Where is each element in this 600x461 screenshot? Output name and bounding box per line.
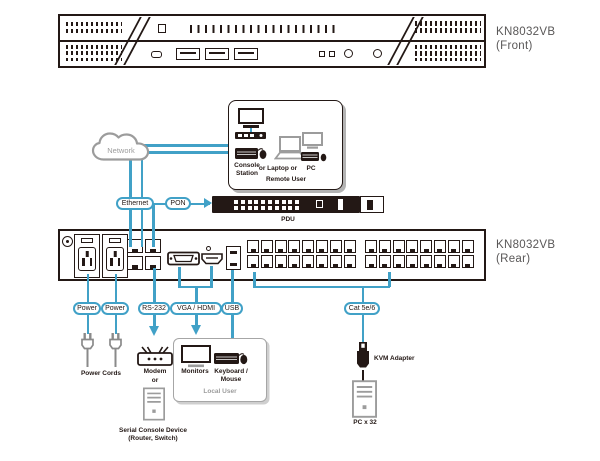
rj45-port xyxy=(365,240,377,253)
power-inlet-1 xyxy=(74,234,100,278)
rear-panel-label: KN8032VB (Rear) xyxy=(496,238,555,266)
pdu-outlet xyxy=(241,206,245,210)
installation-diagram: KN8032VB (Front) KN8032VB (Rear) PDU xyxy=(0,0,600,461)
kvm-adapter-label: KVM Adapter xyxy=(374,355,434,363)
rs232-arrow xyxy=(149,326,159,336)
server-tower-icon xyxy=(352,380,377,418)
monitors-label: Monitors xyxy=(176,368,214,376)
pdu-outlet xyxy=(288,206,292,210)
keyboard-mouse-icon xyxy=(235,145,267,161)
front-knob xyxy=(344,49,353,58)
rj45-port xyxy=(275,240,287,253)
pdu-end-cap xyxy=(360,196,384,213)
front-port-band xyxy=(66,51,122,55)
audio-port xyxy=(206,246,211,251)
rj45-port xyxy=(261,255,273,268)
console-monitor-icon xyxy=(238,108,264,129)
pdu-outlet xyxy=(288,200,292,204)
front-port-band xyxy=(66,22,122,26)
rj45-port xyxy=(393,255,405,268)
monitor-icon xyxy=(181,345,211,368)
rj45-port xyxy=(330,255,342,268)
pdu-outlet xyxy=(234,200,238,204)
kvm-port-group-2 xyxy=(365,240,475,268)
front-led-row xyxy=(190,25,340,33)
pdu-outlet xyxy=(254,206,258,210)
pdu-outlet xyxy=(261,200,265,204)
front-port-band xyxy=(415,51,481,56)
rj45-port xyxy=(406,255,418,268)
front-panel-label: KN8032VB (Front) xyxy=(496,25,555,53)
rj45-port xyxy=(448,240,460,253)
pdu-outlet xyxy=(268,206,272,210)
rj45-port xyxy=(288,255,300,268)
usb-pill: USB xyxy=(221,302,243,315)
ethernet-pill: Ethernet xyxy=(116,197,154,210)
rj45-port xyxy=(434,255,446,268)
front-usb-port xyxy=(176,48,200,60)
cable-rs232 xyxy=(153,268,156,327)
pdu-outlet xyxy=(261,206,265,210)
front-usb-port xyxy=(234,48,258,60)
pc-label: PC xyxy=(300,165,322,173)
pdu-outlet xyxy=(248,206,252,210)
rj45-port xyxy=(462,240,474,253)
pdu-outlet xyxy=(268,200,272,204)
rj45-port xyxy=(393,240,405,253)
pc-monitor-icon xyxy=(302,132,323,149)
pdu-outlet xyxy=(295,200,299,204)
serial-console-label: Serial Console Device (Router, Switch) xyxy=(106,427,200,443)
vga-hdmi-arrow xyxy=(191,325,201,335)
rj45-port xyxy=(261,240,273,253)
rj45-port xyxy=(344,255,356,268)
power-pill-2: Power xyxy=(101,302,129,315)
pdu-slot xyxy=(338,199,343,210)
pdu-outlets xyxy=(234,200,302,211)
cat5e6-pill: Cat 5e/6 xyxy=(344,302,380,315)
rear-model-text: KN8032VB xyxy=(496,238,555,252)
front-connector xyxy=(158,24,166,33)
rj45-port xyxy=(448,255,460,268)
front-port-band xyxy=(66,45,122,49)
cable-cat-bus xyxy=(253,286,390,289)
pc-count-label: PC x 32 xyxy=(343,419,387,427)
serial-console-line2: (Router, Switch) xyxy=(106,435,200,443)
modem-icon xyxy=(137,345,173,367)
iec-socket-icon xyxy=(106,247,124,271)
pon-pill: PON xyxy=(165,197,191,210)
ground-terminal xyxy=(62,236,73,247)
pdu-label: PDU xyxy=(274,216,302,224)
network-cloud-icon: Network xyxy=(90,130,154,168)
front-button xyxy=(319,51,325,57)
front-view-text: (Front) xyxy=(496,39,555,53)
rj45-port xyxy=(420,255,432,268)
power-pill-1: Power xyxy=(73,302,101,315)
pdu-outlet xyxy=(254,200,258,204)
rj45-port xyxy=(275,255,287,268)
vga-port-icon xyxy=(167,251,200,266)
power-inlet-2 xyxy=(102,234,128,278)
fuse-slot xyxy=(109,238,121,243)
rj45-port xyxy=(302,255,314,268)
front-port-band xyxy=(415,45,481,49)
front-button xyxy=(329,51,335,57)
pdu-outlet xyxy=(282,206,286,210)
front-port-band xyxy=(415,21,481,26)
pdu-end-slot xyxy=(367,200,373,210)
rs232-pill: RS-232 xyxy=(138,302,170,315)
front-usb-port xyxy=(205,48,229,60)
keyboard-mouse-label: Keyboard / Mouse xyxy=(211,368,251,384)
rj45-port xyxy=(420,240,432,253)
or-label: or xyxy=(147,377,163,385)
front-port-band xyxy=(415,58,481,61)
kvm-adapter-icon xyxy=(355,342,371,371)
front-knob xyxy=(373,49,382,58)
serial-console-line1: Serial Console Device xyxy=(106,427,200,435)
rj45-port xyxy=(247,255,259,268)
pdu-switch xyxy=(316,200,323,208)
pdu-outlet xyxy=(275,200,279,204)
remote-user-label: Remote User xyxy=(256,176,316,184)
power-plug-icon xyxy=(108,333,123,369)
keyboard-mouse-icon xyxy=(301,150,327,163)
rj45-port xyxy=(344,240,356,253)
front-panel-midline xyxy=(59,40,485,42)
fuse-slot xyxy=(81,238,93,243)
pdu-outlet xyxy=(248,200,252,204)
rj45-port xyxy=(379,255,391,268)
rj45-port xyxy=(434,240,446,253)
lan-pon-port-block xyxy=(127,239,163,270)
hdmi-port-icon xyxy=(201,253,223,265)
power-cords-label: Power Cords xyxy=(62,370,140,378)
rj45-port xyxy=(288,240,300,253)
keyboard-mouse-icon xyxy=(214,350,248,366)
console-station-icon xyxy=(235,132,266,139)
front-mini-usb-port xyxy=(151,51,162,58)
power-plug-icon xyxy=(80,333,95,369)
kvm-port-group-1 xyxy=(247,240,357,268)
pdu-outlet xyxy=(275,206,279,210)
pdu-outlet xyxy=(241,200,245,204)
rj45-port xyxy=(365,255,377,268)
iec-socket-icon xyxy=(78,247,96,271)
rj45-port xyxy=(247,240,259,253)
usb-ports-rear xyxy=(226,246,241,270)
vga-hdmi-pill: VGA / HDMI xyxy=(170,302,222,315)
rj45-port xyxy=(302,240,314,253)
rj45-port xyxy=(316,240,328,253)
rear-view-text: (Rear) xyxy=(496,252,555,266)
network-label: Network xyxy=(107,146,135,155)
rj45-port xyxy=(462,255,474,268)
front-port-band xyxy=(415,28,481,33)
local-user-label: Local User xyxy=(190,388,250,396)
front-model-text: KN8032VB xyxy=(496,25,555,39)
modem-label: Modem xyxy=(140,368,170,376)
pdu-outlet xyxy=(282,200,286,204)
rj45-port xyxy=(127,256,143,270)
front-port-band xyxy=(66,29,122,33)
or-laptop-or-label: or Laptop or xyxy=(256,165,300,173)
rj45-port xyxy=(316,255,328,268)
rj45-port xyxy=(379,240,391,253)
rj45-port xyxy=(406,240,418,253)
pdu-outlet xyxy=(234,206,238,210)
pon-arrow xyxy=(204,198,212,208)
front-port-band xyxy=(66,58,122,61)
cable-pon-drop xyxy=(152,204,155,247)
pdu-outlet xyxy=(295,206,299,210)
rj45-port xyxy=(330,240,342,253)
server-tower-icon xyxy=(143,385,165,423)
